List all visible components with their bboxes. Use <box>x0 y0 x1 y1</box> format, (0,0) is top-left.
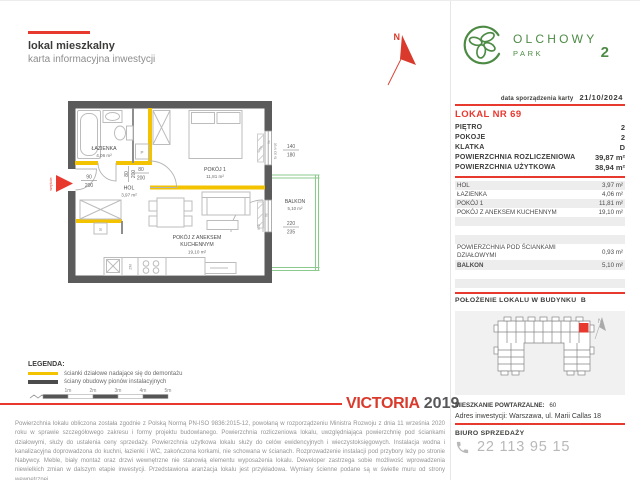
phone-icon <box>455 440 470 455</box>
building-location-title: POŁOŻENIE LOKALU W BUDYNKU B <box>455 297 586 304</box>
room-label: POKÓJ Z ANEKSEM KUCHENNYM <box>455 209 557 216</box>
extra-value: 0,93 m² <box>602 249 625 256</box>
floor-plan: P S ZM wejście 90 200 80 200 80 200 140 … <box>40 93 360 293</box>
entrance-dim-height: 200 <box>85 183 94 189</box>
window-width: 140 <box>287 144 296 150</box>
legend-item-shafts: ściany obudowy pionów instalacyjnych <box>28 379 228 385</box>
entrance-label: wejście <box>48 177 53 191</box>
extra-value: 5,10 m² <box>602 262 625 269</box>
info-panel: OLCHOWY PARK 2 data sporządzenia karty 2… <box>455 1 625 480</box>
cabinet-label: S <box>99 227 102 232</box>
dishwasher-label: ZM <box>129 264 133 269</box>
attr-value: 2 <box>621 133 625 142</box>
investment-address: Adres inwestycji: Warszawa, ul. Marii Ca… <box>455 413 601 420</box>
address-value: Warszawa, ul. Marii Callas 18 <box>509 413 601 420</box>
scale-tick: 2m <box>90 388 97 394</box>
room-value: 3,97 m² <box>602 182 625 189</box>
document-type: lokal mieszkalny <box>28 40 115 52</box>
legend-item-demolishable: ścianki działowe nadające się do demonta… <box>28 371 228 377</box>
washer-label: P <box>140 150 143 155</box>
attr-value: 2 <box>621 123 625 132</box>
north-arrow-tail <box>388 59 401 85</box>
attr-label: KLATKA <box>455 144 484 151</box>
room-row-pokoj1: POKÓJ 1 11,81 m² <box>455 199 625 208</box>
scale-tick: 3m <box>115 388 122 394</box>
balcony-name: BALKON <box>285 199 306 205</box>
balcony-area: 5,10 m² <box>288 206 303 211</box>
brand-text: OLCHOWY PARK 2 <box>513 32 609 58</box>
column-divider <box>450 1 451 480</box>
card-date-label: data sporządzenia karty <box>501 96 574 102</box>
balcony-note-h0: h=0 <box>257 224 261 230</box>
empty-row <box>455 270 625 279</box>
partition-area-row: POWIERZCHNIA POD ŚCIANKAMI DZIAŁOWYMI 0,… <box>455 244 625 260</box>
attr-floor: PIĘTRO 2 <box>455 122 625 132</box>
legend-title: LEGENDA: <box>28 361 228 368</box>
balcony-row: BALKON 5,10 m² <box>455 260 625 270</box>
sales-office-label: BIURO SPRZEDAŻY <box>455 430 524 437</box>
card-date-value: 21/10/2024 <box>579 93 623 102</box>
document-subtitle: karta informacyjna inwestycji <box>28 54 155 65</box>
award-separator-line <box>0 403 342 405</box>
empty-row <box>455 217 625 226</box>
legend-item-label: ściany obudowy pionów instalacyjnych <box>64 379 166 385</box>
window-height: 180 <box>287 153 296 159</box>
hall-area: 3,97 m² <box>121 193 137 198</box>
yellow-wall-swatch <box>28 372 58 375</box>
phone-row: 22 113 95 15 <box>455 439 570 455</box>
address-label: Adres inwestycji: <box>455 413 507 420</box>
extra-label: BALKON <box>455 262 483 269</box>
brand-name: OLCHOWY <box>513 32 609 46</box>
room-value: 4,06 m² <box>602 191 625 198</box>
attr-staircase: KLATKA D <box>455 142 625 152</box>
window-note-fixdol: fix dol h=90 <box>274 143 278 160</box>
room-label: POKÓJ 1 <box>455 200 483 207</box>
room-value: 11,81 m² <box>599 200 625 207</box>
attr-label: POWIERZCHNIA ROZLICZENIOWA <box>455 154 575 161</box>
legend: LEGENDA: ścianki działowe nadające się d… <box>28 361 228 406</box>
empty-row <box>455 226 625 235</box>
card-date-row: data sporządzenia karty 21/10/2024 <box>501 93 623 102</box>
sales-phone-number: 22 113 95 15 <box>477 439 570 455</box>
scale-bar: 1m 2m 3m 4m 5m <box>28 387 178 401</box>
north-label: N <box>394 32 401 42</box>
living-area: 19,10 m² <box>188 250 207 255</box>
highlighted-unit <box>579 323 589 333</box>
furniture <box>78 111 251 276</box>
room1-area: 11,81 m² <box>206 174 224 179</box>
building-minimap: N <box>455 311 625 395</box>
repeat-label: MIESZKANIE POWTARZALNE: <box>455 402 545 409</box>
award-name: VICTORIA <box>346 395 420 413</box>
north-arrow: N <box>383 27 423 89</box>
divider-red <box>455 292 625 294</box>
balcony-railing <box>272 175 320 271</box>
room-value: 19,10 m² <box>599 209 625 216</box>
olchowy-park-logo-icon <box>461 23 505 67</box>
room-label: HOL <box>455 182 470 189</box>
attr-label: POWIERZCHNIA UŻYTKOWA <box>455 164 556 171</box>
divider-red <box>455 176 625 178</box>
living-name-line2: KUCHENNYM <box>180 242 213 248</box>
room1-door-width: 80 <box>138 167 144 173</box>
victoria-award-logo: VICTORIA 2019 <box>346 395 459 413</box>
brand-block: OLCHOWY PARK 2 <box>461 23 619 67</box>
investment-info-card: lokal mieszkalny karta informacyjna inwe… <box>0 0 640 480</box>
scale-tick: 5m <box>165 388 172 394</box>
location-title-text: POŁOŻENIE LOKALU W BUDYNKU <box>455 297 576 304</box>
scale-tick: 4m <box>140 388 147 394</box>
room-row-lazienka: ŁAZIENKA 4,06 m² <box>455 190 625 199</box>
address-underline <box>455 423 625 425</box>
attr-usable-area: POWIERZCHNIA UŻYTKOWA 38,94 m² <box>455 162 625 172</box>
entrance-marker: wejście <box>48 175 73 192</box>
header-accent-line <box>28 31 90 34</box>
room1-door-height: 200 <box>137 176 146 182</box>
living-name-line1: POKÓJ Z ANEKSEM <box>173 234 222 241</box>
attr-value: 39,87 m² <box>595 153 625 162</box>
empty-row <box>455 279 625 288</box>
repeat-value: 60 <box>549 402 556 409</box>
repeat-unit-row: MIESZKANIE POWTARZALNE: 60 <box>455 402 556 409</box>
dark-wall-swatch <box>28 380 58 384</box>
room1-name: POKÓJ 1 <box>204 166 226 173</box>
window-note-fix: fix <box>267 140 271 144</box>
attr-billable-area: POWIERZCHNIA ROZLICZENIOWA 39,87 m² <box>455 152 625 162</box>
extra-label: POWIERZCHNIA POD ŚCIANKAMI DZIAŁOWYMI <box>455 244 569 260</box>
divider-red <box>455 104 625 106</box>
scale-tick: 1m <box>65 388 72 394</box>
room-label: ŁAZIENKA <box>455 191 487 198</box>
bathroom-area: 4,06 m² <box>96 153 112 158</box>
legend-item-label: ścianki działowe nadające się do demonta… <box>64 371 182 377</box>
bathroom-name: ŁAZIENKA <box>91 146 117 152</box>
brand-park: PARK <box>513 49 543 58</box>
attr-rooms: POKOJE 2 <box>455 132 625 142</box>
bathroom-door-width: 80 <box>124 171 130 177</box>
brand-number: 2 <box>601 48 609 58</box>
empty-row <box>455 235 625 244</box>
north-arrow-head <box>400 35 416 65</box>
room-row-aneks: POKÓJ Z ANEKSEM KUCHENNYM 19,10 m² <box>455 208 625 217</box>
balcony-door-height: 235 <box>287 230 296 236</box>
attr-label: POKOJE <box>455 134 485 141</box>
balcony-door-width: 220 <box>287 221 296 227</box>
attr-label: PIĘTRO <box>455 124 482 131</box>
attr-value: 38,94 m² <box>595 163 625 172</box>
entrance-dim-width: 90 <box>86 175 92 181</box>
room-row-hol: HOL 3,97 m² <box>455 181 625 190</box>
legal-footnote: Powierzchnia lokalu obliczona została zg… <box>15 420 445 480</box>
attr-value: D <box>620 143 625 152</box>
hall-name: HOL <box>124 186 135 192</box>
building-letter: B <box>581 297 586 304</box>
entrance-arrow-icon <box>56 175 73 192</box>
unit-title: LOKAL NR 69 <box>455 109 522 120</box>
balcony-note-fix: fix <box>265 213 269 217</box>
